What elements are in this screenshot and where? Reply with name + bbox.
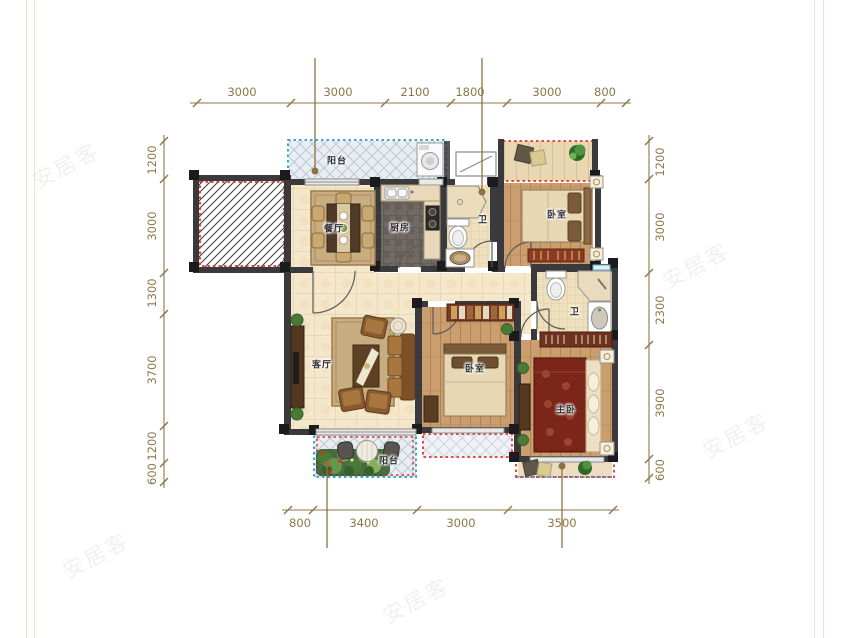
dim-bottom-1: 3400 [349,516,378,530]
dim-bottom-3: 3500 [547,516,576,530]
dim-left-5: 600 [145,463,159,485]
washing-machine-icon [417,143,443,176]
dim-right-4: 600 [653,459,667,481]
dim-bottom-2: 3000 [446,516,475,530]
room-label-bedroom-middle: 卧室 [465,362,485,375]
room-label-kitchen: 厨房 [390,221,410,234]
dim-top-0: 3000 [227,85,256,99]
room-label-balcony-bottom: 阳台 [379,454,399,467]
dim-left-2: 1300 [145,278,159,307]
dim-top-5: 800 [594,85,616,99]
dim-left-3: 3700 [145,355,159,384]
room-label-bath-1: 卫 [478,213,488,226]
dim-top-1: 3000 [323,85,352,99]
room-label-bedroom-top-right: 卧室 [547,208,567,221]
room-label-master-bedroom: 主卧 [556,403,576,416]
dim-right-0: 1200 [653,147,667,176]
dim-top-3: 1800 [455,85,484,99]
floorplan-page: 安居客 安居客 安居客 安居客 安居客 [0,0,850,638]
dim-right-3: 3900 [653,388,667,417]
dim-left-4: 1200 [145,431,159,460]
dim-left-1: 3000 [145,211,159,240]
dim-top-2: 2100 [400,85,429,99]
room-label-living: 客厅 [312,358,332,371]
entry-door-schematic [456,152,496,176]
dim-bottom-0: 800 [289,516,311,530]
room-label-balcony-top: 阳台 [327,154,347,167]
dim-right-2: 2300 [653,295,667,324]
dim-right-1: 3000 [653,212,667,241]
dim-top-4: 3000 [532,85,561,99]
dim-left-0: 1200 [145,145,159,174]
room-label-dining: 餐厅 [324,222,344,235]
room-label-bath-2: 卫 [570,305,580,318]
